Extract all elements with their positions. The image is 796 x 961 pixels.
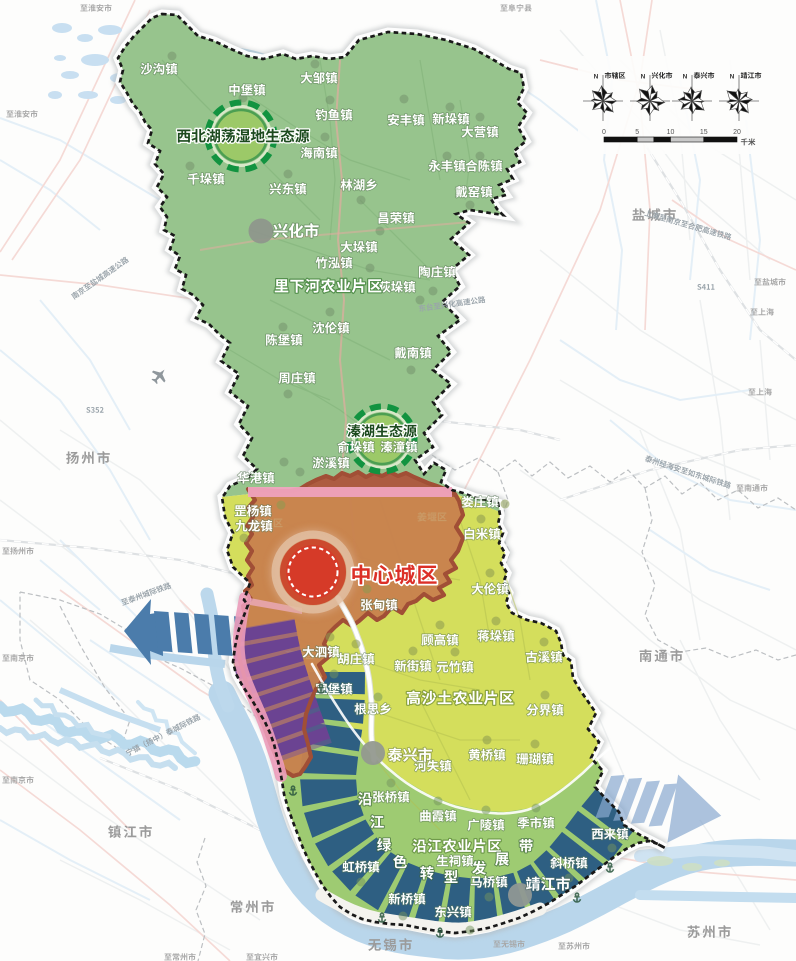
svg-text:15: 15 [700,129,708,136]
svg-text:10: 10 [667,129,675,136]
svg-text:N: N [594,74,599,81]
svg-text:5: 5 [635,129,639,136]
svg-text:N: N [683,74,688,81]
svg-text:N: N [641,74,646,81]
svg-text:0: 0 [602,129,606,136]
svg-text:20: 20 [733,129,741,136]
svg-text:N: N [730,74,735,81]
